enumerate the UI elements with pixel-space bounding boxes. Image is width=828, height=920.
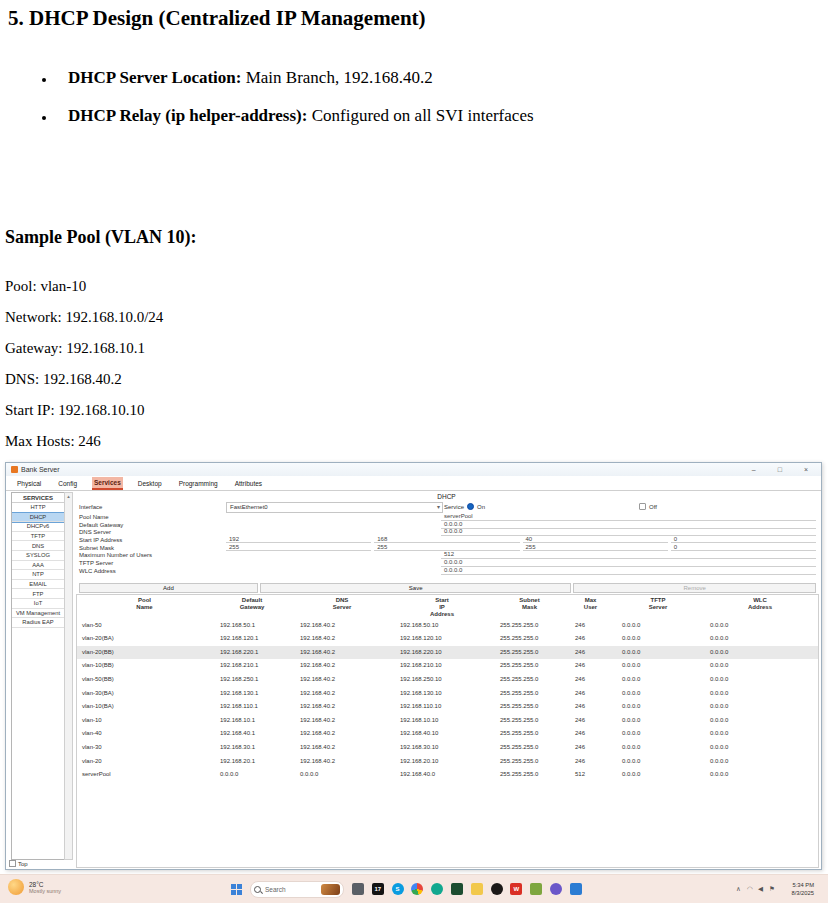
- doc-line: Pool: vlan-10: [5, 278, 86, 295]
- table-cell: 192.168.250.10: [392, 673, 492, 687]
- table-cell: 246: [567, 687, 614, 701]
- table-cell: 0.0.0.0: [614, 741, 702, 755]
- table-cell: 0.0.0.0: [614, 755, 702, 769]
- sidebar-item-ftp[interactable]: FTP: [12, 589, 64, 599]
- table-cell: 255.255.255.0: [492, 673, 567, 687]
- field-input[interactable]: 0.0.0.0: [441, 567, 816, 575]
- octet-input[interactable]: 0: [671, 544, 816, 551]
- weather-condition: Mostly sunny: [29, 888, 61, 894]
- visual-studio-icon[interactable]: [550, 883, 562, 895]
- table-cell: 246: [567, 646, 614, 660]
- form-row: TFTP Server0.0.0.0: [79, 559, 818, 567]
- table-cell: 192.168.210.1: [212, 659, 292, 673]
- doc-line: Network: 192.168.10.0/24: [5, 309, 163, 326]
- doc-line: Max Hosts: 246: [5, 433, 101, 450]
- interface-value: FastEthernet0: [230, 504, 268, 510]
- table-cell: 192.168.40.2: [292, 755, 392, 769]
- table-cell: 0.0.0.0: [614, 714, 702, 728]
- table-cell: vlan-50(BB): [77, 673, 212, 687]
- page-title: 5. DHCP Design (Centralized IP Managemen…: [8, 6, 426, 31]
- column-header: Start IP Address: [392, 597, 492, 618]
- sidebar-item-ntp[interactable]: NTP: [12, 570, 64, 580]
- dhcp-panel-title: DHCP: [76, 493, 817, 500]
- table-cell: 192.168.30.10: [392, 741, 492, 755]
- packet-tracer-window: Bank Server – □ × PhysicalConfigServices…: [5, 462, 822, 870]
- table-cell: vlan-20: [77, 755, 212, 769]
- table-row[interactable]: serverPool0.0.0.00.0.0.0192.168.40.0255.…: [77, 768, 818, 782]
- terminal-icon[interactable]: [451, 883, 463, 895]
- windows-start-button[interactable]: [231, 884, 242, 895]
- table-cell: 0.0.0.0: [614, 727, 702, 741]
- table-cell: vlan-30(BA): [77, 687, 212, 701]
- laptop-icon[interactable]: [352, 883, 364, 895]
- table-cell: 192.168.210.10: [392, 659, 492, 673]
- table-cell: 0.0.0.0: [614, 768, 702, 782]
- table-cell: 255.255.255.0: [492, 700, 567, 714]
- tab-desktop[interactable]: Desktop: [136, 478, 164, 489]
- field-label: Default Gateway: [79, 522, 123, 528]
- table-cell: 192.168.40.2: [292, 659, 392, 673]
- doc-line: Gateway: 192.168.10.1: [5, 340, 145, 357]
- table-cell: 192.168.220.1: [212, 646, 292, 660]
- sidebar-item-dns[interactable]: DNS: [12, 541, 64, 551]
- table-cell: 255.255.255.0: [492, 646, 567, 660]
- folder-icon[interactable]: [471, 883, 483, 895]
- table-cell: 0.0.0.0: [702, 768, 818, 782]
- table-cell: 0.0.0.0: [614, 646, 702, 660]
- octet-group: 192168400: [226, 536, 816, 543]
- form-row: Subnet Mask2552552550: [79, 544, 818, 552]
- table-cell: serverPool: [77, 768, 212, 782]
- sidebar-header: SERVICES: [12, 493, 64, 503]
- maximize-button[interactable]: □: [778, 466, 782, 473]
- table-cell: 255.255.255.0: [492, 632, 567, 646]
- tab-physical[interactable]: Physical: [15, 478, 43, 489]
- table-cell: 0.0.0.0: [702, 619, 818, 633]
- table-cell: 192.168.120.10: [392, 632, 492, 646]
- bullet-item: DHCP Relay (ip helper-address): Configur…: [68, 106, 534, 126]
- sidebar-item-vm-management[interactable]: VM Management: [12, 609, 64, 619]
- service-on-radio[interactable]: [467, 503, 474, 510]
- field-label: DNS Server: [79, 529, 111, 535]
- checkbox-icon[interactable]: [9, 860, 16, 867]
- tab-services[interactable]: Services: [92, 477, 123, 490]
- octet-group: 2552552550: [226, 544, 816, 551]
- table-cell: 0.0.0.0: [614, 673, 702, 687]
- table-row[interactable]: vlan-30192.168.30.1192.168.40.2192.168.3…: [77, 741, 818, 755]
- table-cell: 255.255.255.0: [492, 755, 567, 769]
- table-cell: 192.168.110.10: [392, 700, 492, 714]
- section-subheading: Sample Pool (VLAN 10):: [5, 227, 197, 248]
- interface-label: Interface: [79, 504, 102, 510]
- table-cell: vlan-20(BB): [77, 646, 212, 660]
- table-cell: vlan-30: [77, 741, 212, 755]
- sidebar-item-iot[interactable]: IoT: [12, 599, 64, 609]
- table-cell: 192.168.40.2: [292, 700, 392, 714]
- field-label: Subnet Mask: [79, 545, 114, 551]
- table-cell: 192.168.10.10: [392, 714, 492, 728]
- app-icon: [11, 466, 18, 473]
- mail-icon[interactable]: [570, 883, 582, 895]
- table-cell: 512: [567, 768, 614, 782]
- table-cell: 192.168.50.1: [212, 619, 292, 633]
- table-cell: 255.255.255.0: [492, 727, 567, 741]
- table-cell: 0.0.0.0: [702, 755, 818, 769]
- table-cell: 246: [567, 755, 614, 769]
- table-cell: 192.168.130.1: [212, 687, 292, 701]
- table-row[interactable]: vlan-10192.168.10.1192.168.40.2192.168.1…: [77, 714, 818, 728]
- table-cell: 192.168.40.2: [292, 714, 392, 728]
- table-cell: 192.168.40.2: [292, 727, 392, 741]
- table-cell: 192.168.40.2: [292, 741, 392, 755]
- tab-attributes[interactable]: Attributes: [233, 478, 264, 489]
- table-header-row: Pool NameDefault GatewayDNS ServerStart …: [77, 595, 818, 619]
- bullet-item: DHCP Server Location: Main Branch, 192.1…: [68, 68, 433, 88]
- table-row[interactable]: vlan-20(BA)192.168.120.1192.168.40.2192.…: [77, 632, 818, 646]
- github-icon[interactable]: [491, 883, 503, 895]
- bullet-dot: [42, 78, 46, 82]
- service-on-label: On: [477, 504, 485, 510]
- table-cell: 192.168.40.2: [292, 673, 392, 687]
- table-cell: vlan-10: [77, 714, 212, 728]
- volume-icon[interactable]: ◀: [758, 885, 763, 893]
- search-icon: [254, 886, 261, 893]
- field-label: Pool Name: [79, 514, 109, 520]
- doc-line: Start IP: 192.168.10.10: [5, 402, 145, 419]
- button-row: Add Save Remove: [79, 583, 816, 593]
- sidebar-item-radius-eap[interactable]: Radius EAP: [12, 618, 64, 628]
- table-row[interactable]: vlan-50(BB)192.168.250.1192.168.40.2192.…: [77, 673, 818, 687]
- service-label: Service: [444, 504, 464, 510]
- tab-config[interactable]: Config: [56, 478, 79, 489]
- table-cell: 246: [567, 619, 614, 633]
- dhcp-pool-table: Pool NameDefault GatewayDNS ServerStart …: [76, 594, 819, 868]
- column-header: Pool Name: [77, 597, 212, 611]
- table-cell: 0.0.0.0: [702, 700, 818, 714]
- column-header: DNS Server: [292, 597, 392, 611]
- table-cell: 0.0.0.0: [702, 741, 818, 755]
- octet-input[interactable]: 255: [523, 544, 668, 551]
- doc-line: DNS: 192.168.40.2: [5, 371, 122, 388]
- tray-date: 8/3/2025: [791, 889, 814, 897]
- window-title: Bank Server: [21, 466, 60, 473]
- table-cell: 192.168.40.2: [292, 632, 392, 646]
- weather-temp: 28°C: [29, 881, 61, 888]
- sidebar-item-dhcpv6[interactable]: DHCPv6: [12, 522, 64, 532]
- form-row: Default Gateway0.0.0.0: [79, 521, 818, 529]
- table-cell: vlan-10(BA): [77, 700, 212, 714]
- column-header: Default Gateway: [212, 597, 292, 611]
- sidebar-item-email[interactable]: EMAIL: [12, 580, 64, 590]
- search-input[interactable]: Search: [250, 881, 344, 898]
- table-body: vlan-50192.168.50.1192.168.40.2192.168.5…: [77, 619, 818, 782]
- bullet-text: Configured on all SVI interfaces: [307, 106, 533, 125]
- table-row[interactable]: vlan-50192.168.50.1192.168.40.2192.168.5…: [77, 619, 818, 633]
- interface-select[interactable]: ▾ FastEthernet0: [226, 502, 443, 513]
- table-cell: 255.255.255.0: [492, 687, 567, 701]
- table-cell: 255.255.255.0: [492, 619, 567, 633]
- chevron-down-icon: ▾: [437, 503, 440, 512]
- table-cell: 0.0.0.0: [702, 714, 818, 728]
- table-cell: 0.0.0.0: [702, 727, 818, 741]
- table-cell: 192.168.40.0: [392, 768, 492, 782]
- sidebar-scrollbar[interactable]: ▴: [64, 492, 73, 860]
- sidebar-item-dhcp[interactable]: DHCP: [12, 513, 64, 523]
- octet-input[interactable]: 40: [523, 536, 668, 543]
- table-cell: 0.0.0.0: [614, 632, 702, 646]
- table-cell: 255.255.255.0: [492, 714, 567, 728]
- tray-time: 5:34 PM: [791, 881, 814, 889]
- octet-input[interactable]: 0: [671, 536, 816, 543]
- table-cell: vlan-40: [77, 727, 212, 741]
- bullet-label: DHCP Relay (ip helper-address):: [68, 106, 307, 125]
- form-row: Maximum Number of Users512: [79, 551, 818, 559]
- table-row[interactable]: vlan-30(BA)192.168.130.1192.168.40.2192.…: [77, 687, 818, 701]
- weather-widget[interactable]: 28°C Mostly sunny: [8, 879, 61, 895]
- bullet-label: DHCP Server Location:: [68, 68, 241, 87]
- form-row: Start IP Address192168400: [79, 536, 818, 544]
- table-cell: 192.168.40.2: [292, 646, 392, 660]
- packet-tracer-icon[interactable]: [530, 883, 542, 895]
- table-cell: 255.255.255.0: [492, 741, 567, 755]
- table-cell: 192.168.110.1: [212, 700, 292, 714]
- minimize-button[interactable]: –: [752, 466, 756, 473]
- table-cell: 192.168.220.10: [392, 646, 492, 660]
- tray-chevron-icon[interactable]: ∧: [736, 885, 741, 893]
- octet-input[interactable]: 255: [374, 544, 519, 551]
- flag-icon[interactable]: ⚑: [769, 885, 775, 893]
- table-cell: 192.168.20.10: [392, 755, 492, 769]
- table-cell: 246: [567, 700, 614, 714]
- table-cell: 192.168.40.2: [292, 619, 392, 633]
- field-label: WLC Address: [79, 568, 116, 574]
- table-row[interactable]: vlan-40192.168.40.1192.168.40.2192.168.4…: [77, 727, 818, 741]
- tray-clock[interactable]: 5:34 PM 8/3/2025: [791, 881, 814, 898]
- sidebar-item-tftp[interactable]: TFTP: [12, 532, 64, 542]
- table-cell: 192.168.120.1: [212, 632, 292, 646]
- table-cell: 0.0.0.0: [614, 687, 702, 701]
- table-cell: 0.0.0.0: [212, 768, 292, 782]
- skype-icon[interactable]: S: [392, 883, 404, 895]
- sidebar-item-syslog[interactable]: SYSLOG: [12, 551, 64, 561]
- table-cell: 0.0.0.0: [614, 619, 702, 633]
- table-cell: 192.168.40.2: [292, 687, 392, 701]
- tab-programming[interactable]: Programming: [177, 478, 220, 489]
- search-placeholder: Search: [265, 886, 317, 893]
- table-cell: 246: [567, 659, 614, 673]
- service-off-label: Off: [649, 504, 657, 510]
- table-cell: 192.168.130.10: [392, 687, 492, 701]
- remove-button[interactable]: Remove: [573, 583, 816, 593]
- dhcp-form: Pool NameserverPoolDefault Gateway0.0.0.…: [79, 513, 818, 575]
- table-cell: 255.255.255.0: [492, 768, 567, 782]
- table-cell: 0.0.0.0: [702, 687, 818, 701]
- form-row: Pool NameserverPool: [79, 513, 818, 521]
- chrome-icon[interactable]: [411, 883, 423, 895]
- table-cell: 0.0.0.0: [702, 646, 818, 660]
- table-cell: 0.0.0.0: [702, 673, 818, 687]
- weather-sun-icon: [8, 879, 24, 895]
- octet-input[interactable]: 192: [226, 536, 371, 543]
- table-cell: vlan-50: [77, 619, 212, 633]
- bullet-text: Main Branch, 192.168.40.2: [241, 68, 432, 87]
- window-titlebar[interactable]: Bank Server – □ ×: [6, 463, 821, 477]
- table-cell: 0.0.0.0: [614, 659, 702, 673]
- media-17-icon[interactable]: 17: [372, 883, 384, 895]
- save-button[interactable]: Save: [260, 583, 572, 593]
- close-button[interactable]: ×: [804, 466, 808, 473]
- service-off-radio[interactable]: [639, 503, 646, 510]
- table-cell: 192.168.250.1: [212, 673, 292, 687]
- add-button[interactable]: Add: [79, 583, 258, 593]
- octet-input[interactable]: 255: [226, 544, 371, 551]
- column-header: WLC Address: [702, 597, 818, 611]
- top-checkbox-label: Top: [18, 861, 28, 867]
- field-label: Maximum Number of Users: [79, 552, 152, 558]
- column-header: TFTP Server: [614, 597, 702, 611]
- table-cell: 0.0.0.0: [702, 632, 818, 646]
- table-cell: 246: [567, 714, 614, 728]
- top-checkbox[interactable]: Top: [9, 860, 28, 867]
- news-thumbnail: [321, 884, 340, 895]
- table-cell: 246: [567, 741, 614, 755]
- table-row[interactable]: vlan-20192.168.20.1192.168.40.2192.168.2…: [77, 755, 818, 769]
- table-cell: 0.0.0.0: [292, 768, 392, 782]
- table-cell: vlan-20(BA): [77, 632, 212, 646]
- table-cell: 246: [567, 727, 614, 741]
- table-row[interactable]: vlan-10(BB)192.168.210.1192.168.40.2192.…: [77, 659, 818, 673]
- table-cell: 192.168.10.1: [212, 714, 292, 728]
- column-header: Subnet Mask: [492, 597, 567, 611]
- field-label: TFTP Server: [79, 560, 113, 566]
- services-sidebar: SERVICES HTTPDHCPDHCPv6TFTPDNSSYSLOGAAAN…: [11, 492, 65, 860]
- wifi-icon[interactable]: ◠: [747, 885, 753, 893]
- column-header: Max User: [567, 597, 614, 611]
- form-row: DNS Server0.0.0.0: [79, 528, 818, 536]
- table-cell: 0.0.0.0: [614, 700, 702, 714]
- table-cell: 192.168.30.1: [212, 741, 292, 755]
- sidebar-item-aaa[interactable]: AAA: [12, 561, 64, 571]
- table-cell: 192.168.20.1: [212, 755, 292, 769]
- table-cell: 192.168.40.10: [392, 727, 492, 741]
- table-cell: 192.168.40.1: [212, 727, 292, 741]
- form-row: WLC Address0.0.0.0: [79, 567, 818, 575]
- octet-input[interactable]: 168: [374, 536, 519, 543]
- table-cell: 246: [567, 673, 614, 687]
- table-cell: 0.0.0.0: [702, 659, 818, 673]
- field-label: Start IP Address: [79, 537, 122, 543]
- wondershare-icon[interactable]: W: [510, 883, 522, 895]
- edge-icon[interactable]: [431, 883, 443, 895]
- tab-bar: PhysicalConfigServicesDesktopProgramming…: [6, 476, 821, 491]
- table-row[interactable]: vlan-20(BB)192.168.220.1192.168.40.2192.…: [77, 646, 818, 660]
- bullet-dot: [42, 116, 46, 120]
- taskbar: 28°C Mostly sunny Search 17SW ∧◠◀⚑ 5:34 …: [0, 874, 828, 903]
- sidebar-item-http[interactable]: HTTP: [12, 503, 64, 513]
- table-cell: 246: [567, 632, 614, 646]
- table-cell: 192.168.50.10: [392, 619, 492, 633]
- table-cell: 255.255.255.0: [492, 659, 567, 673]
- table-cell: vlan-10(BB): [77, 659, 212, 673]
- table-row[interactable]: vlan-10(BA)192.168.110.1192.168.40.2192.…: [77, 700, 818, 714]
